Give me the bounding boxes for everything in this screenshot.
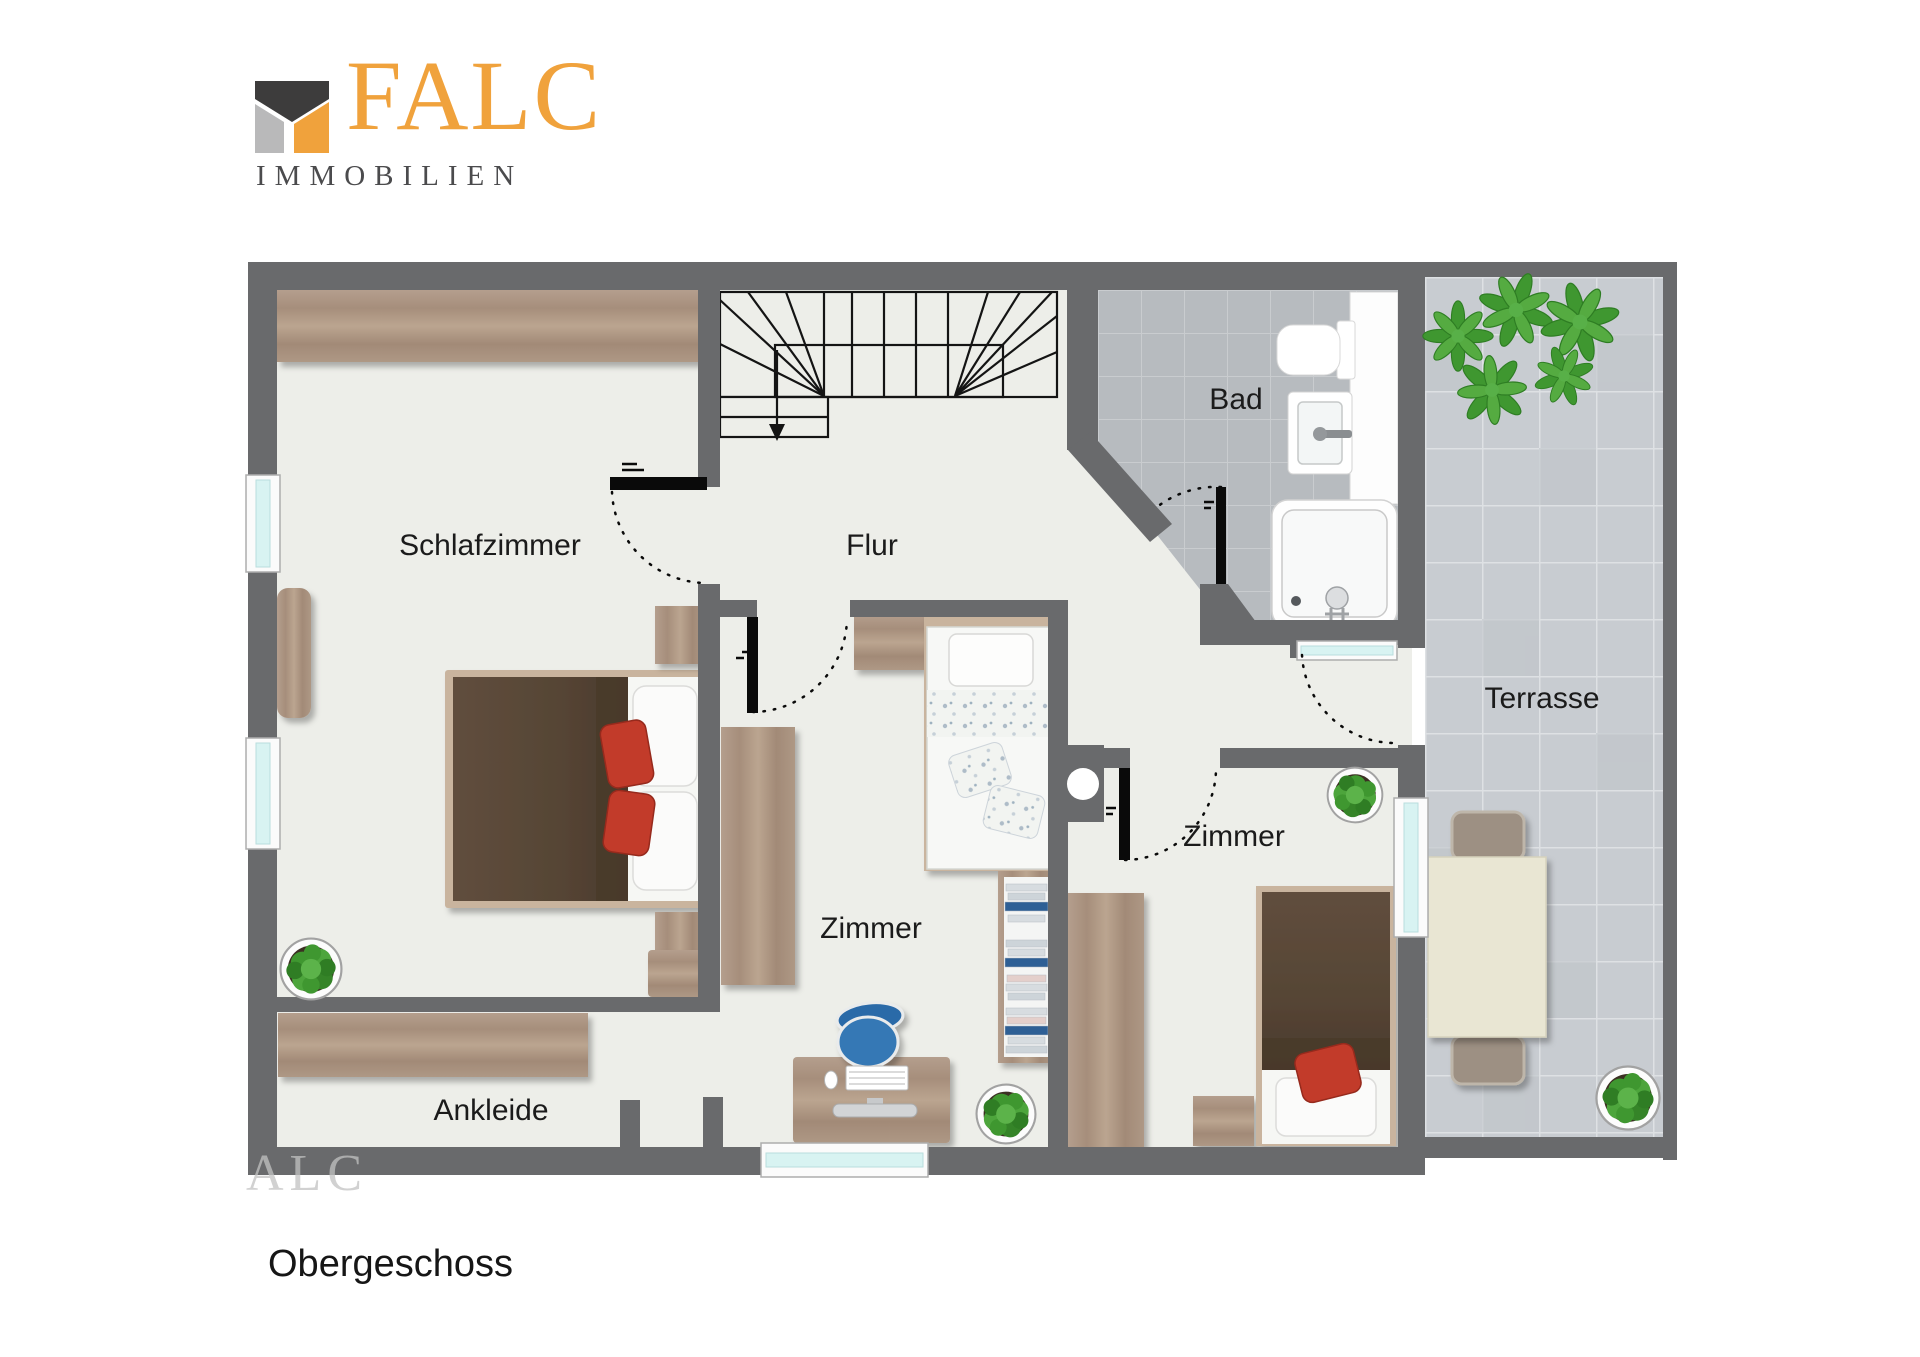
wall-left <box>248 262 277 1175</box>
drain <box>1291 596 1301 606</box>
wall-zimmer-rechts-top <box>1220 748 1398 768</box>
floor-title: Obergeschoss <box>268 1243 513 1286</box>
brand-subtitle: IMMOBILIEN <box>256 162 523 191</box>
wardrobe <box>277 290 700 362</box>
room-label-schlafzimmer: Schlafzimmer <box>399 529 581 563</box>
single-bed <box>1256 886 1396 1146</box>
room-label-flur: Flur <box>846 529 898 563</box>
single-bed <box>924 613 1059 871</box>
watermark: ALC <box>246 1148 368 1200</box>
chair <box>1452 1036 1524 1084</box>
desk-chair <box>836 1000 905 1067</box>
shower-head <box>1326 587 1348 609</box>
chimney-flue <box>1067 768 1099 800</box>
window <box>246 475 280 572</box>
table <box>1428 857 1546 1037</box>
sink <box>1288 392 1352 474</box>
wall-house-terrace-upper <box>1398 262 1425 648</box>
nightstand <box>655 912 705 956</box>
window <box>761 1143 928 1177</box>
toilet <box>1277 321 1355 379</box>
wall-top <box>248 262 1425 290</box>
wall-zimmer-rechts-top <box>1068 748 1130 768</box>
room-label-zimmer-rechts: Zimmer <box>1183 820 1285 854</box>
brand-logo: FALC IMMOBILIEN <box>254 60 674 200</box>
wall-zimmer-divider <box>1048 600 1068 1147</box>
nightstand <box>1193 1096 1254 1146</box>
brand-logo-mark-icon <box>254 80 330 154</box>
potted-plant-icon <box>281 939 342 1000</box>
double-bed <box>445 670 707 908</box>
room-label-zimmer-mitte: Zimmer <box>820 912 922 946</box>
wall-schlafzimmer-flur <box>698 584 720 1012</box>
room-label-terrasse: Terrasse <box>1484 682 1599 716</box>
window <box>1394 798 1428 937</box>
dresser <box>277 588 311 718</box>
wardrobe <box>1068 893 1144 1148</box>
room-label-bad: Bad <box>1209 383 1262 417</box>
wardrobe <box>721 727 795 985</box>
wall-stub <box>620 1100 640 1147</box>
shower <box>1272 500 1397 627</box>
wall-terrace-bottom <box>1425 1137 1677 1158</box>
wall-terrace-top <box>1425 262 1677 277</box>
window <box>246 738 280 849</box>
red-pillow <box>602 789 656 857</box>
wall-stub <box>703 1097 723 1147</box>
mouse <box>825 1071 838 1089</box>
wall-flur-zimmer <box>850 600 1060 617</box>
chair <box>1452 812 1524 860</box>
nightstand <box>655 606 705 664</box>
room-label-ankleide: Ankleide <box>433 1094 548 1128</box>
bookshelf <box>998 871 1055 1063</box>
nightstand <box>854 615 924 670</box>
ankleide-wardrobe <box>278 1013 588 1077</box>
wall-flur-zimmer <box>720 600 757 617</box>
bathroom-fixtures <box>1272 292 1398 627</box>
wall-schlafzimmer-ankleide <box>277 997 720 1012</box>
wall-stairwell <box>698 290 720 487</box>
chest <box>648 950 704 997</box>
wall-terrace-right <box>1663 262 1677 1160</box>
brand-name: FALC <box>346 46 602 146</box>
wall-bad-west <box>1067 290 1098 450</box>
vanity-counter <box>1350 292 1398 504</box>
floorplan-page: FALC IMMOBILIEN Schlafzimmer Flur Bad Zi… <box>0 0 1920 1357</box>
